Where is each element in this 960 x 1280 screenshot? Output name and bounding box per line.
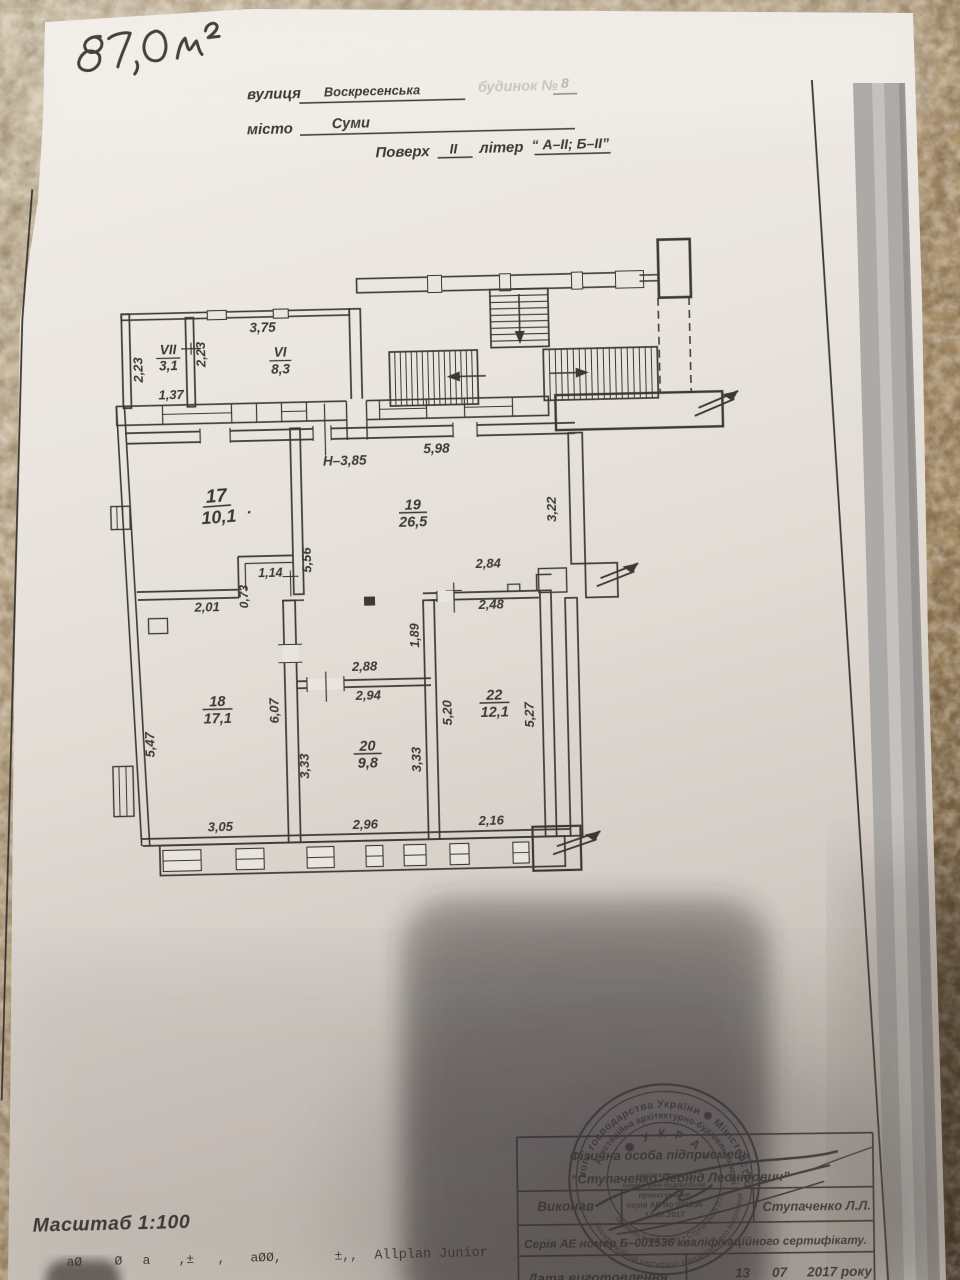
svg-text:2,88: 2,88 [351, 658, 378, 674]
svg-text:3,33: 3,33 [408, 746, 424, 772]
svg-text:Н–3,85: Н–3,85 [323, 453, 367, 469]
svg-text:6,07: 6,07 [266, 697, 282, 723]
svg-text:5,56: 5,56 [299, 546, 315, 572]
svg-text:17,1: 17,1 [203, 711, 232, 728]
svg-text:3,33: 3,33 [297, 753, 313, 779]
svg-text:9,8: 9,8 [358, 755, 379, 771]
svg-text:3,1: 3,1 [159, 358, 178, 373]
svg-text:Поверх: Поверх [375, 143, 430, 161]
svg-text:17: 17 [205, 485, 229, 508]
svg-text:Суми: Суми [332, 115, 371, 132]
svg-text:22: 22 [485, 687, 503, 703]
svg-text:літер: літер [478, 139, 524, 157]
svg-text:19: 19 [405, 497, 422, 513]
svg-text:5,47: 5,47 [142, 731, 158, 757]
svg-text:VII: VII [160, 342, 177, 357]
svg-text:0,73: 0,73 [237, 584, 252, 608]
svg-text:10,1: 10,1 [201, 506, 237, 529]
svg-text:VI: VI [274, 344, 287, 359]
svg-text:8,3: 8,3 [271, 361, 291, 376]
svg-text:“ А–ІІ; Б–ІІ”: “ А–ІІ; Б–ІІ” [531, 135, 609, 153]
svg-text:1,89: 1,89 [408, 623, 423, 648]
svg-text:місто: місто [247, 120, 293, 138]
svg-text:вулиця: вулиця [247, 85, 301, 103]
svg-text:18: 18 [209, 694, 226, 710]
svg-text:Воскресенська: Воскресенська [324, 82, 421, 99]
svg-text:2,96: 2,96 [351, 816, 378, 832]
svg-text:1,37: 1,37 [158, 387, 184, 403]
svg-text:8: 8 [561, 75, 569, 91]
svg-text:5,20: 5,20 [439, 699, 455, 725]
svg-text:2,16: 2,16 [477, 812, 504, 828]
svg-text:20: 20 [358, 738, 376, 754]
svg-text:будинок №: будинок № [478, 78, 559, 96]
svg-text:3,22: 3,22 [544, 496, 560, 522]
svg-text:2,23: 2,23 [130, 356, 146, 383]
svg-text:2,23: 2,23 [193, 341, 209, 368]
svg-text:2,94: 2,94 [354, 687, 381, 703]
svg-text:2,01: 2,01 [193, 599, 220, 615]
svg-text:1,14: 1,14 [258, 566, 283, 581]
svg-text:12,1: 12,1 [480, 704, 509, 721]
svg-text:3,75: 3,75 [249, 320, 276, 336]
svg-text:5,98: 5,98 [423, 441, 450, 457]
svg-text:·: · [246, 504, 252, 521]
svg-text:2,84: 2,84 [474, 555, 501, 571]
svg-text:26,5: 26,5 [398, 514, 429, 531]
svg-text:3,05: 3,05 [207, 819, 233, 835]
svg-text:5,27: 5,27 [521, 701, 537, 727]
